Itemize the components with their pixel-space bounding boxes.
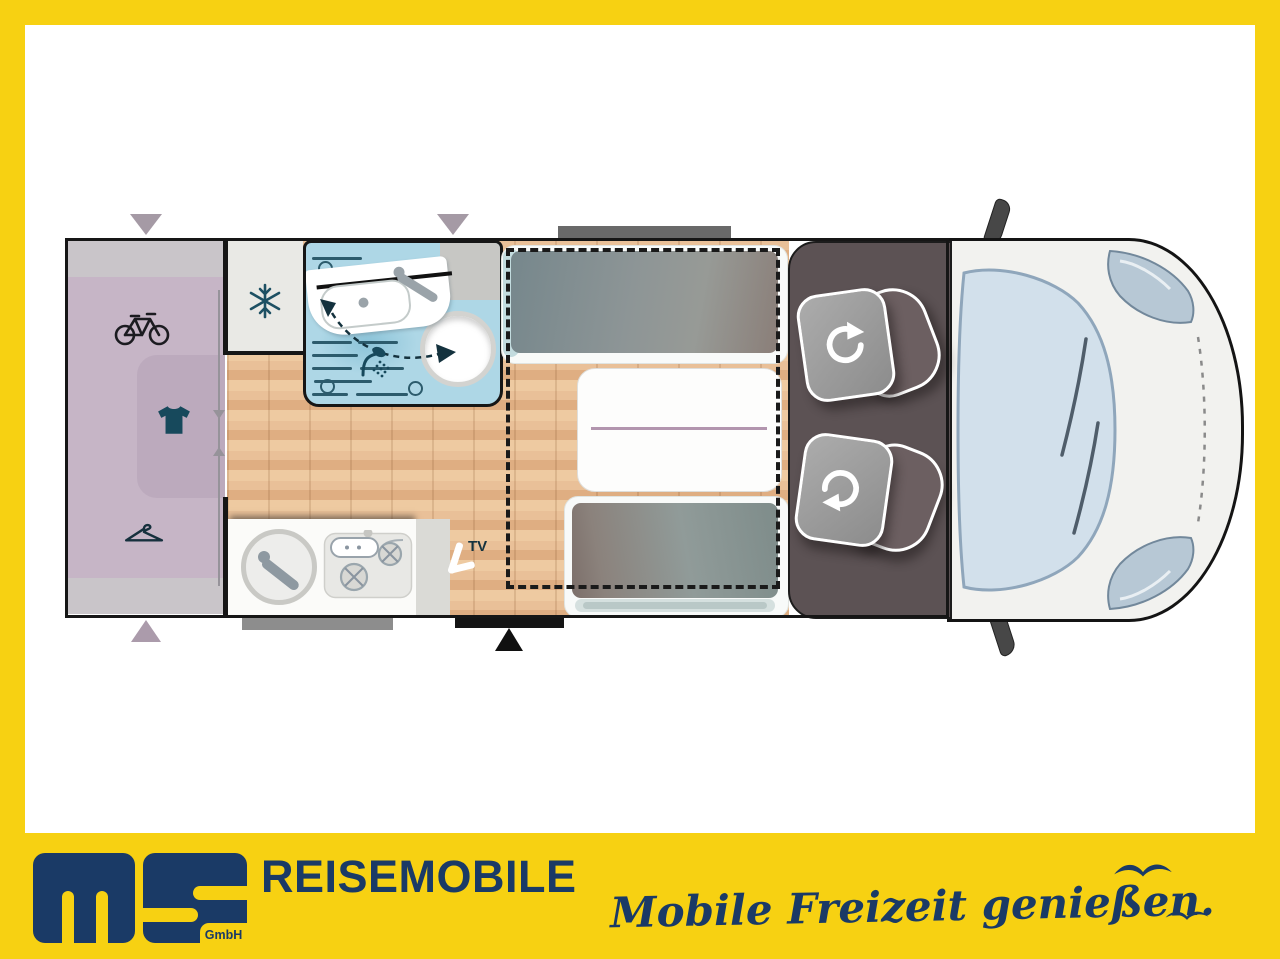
bird-icon [1112,855,1174,887]
swivel-seat-icon [792,430,896,549]
logo-m-block [33,853,135,943]
bathroom [303,240,503,407]
windshield [958,270,1115,590]
bird-icon [1164,903,1210,927]
hood-line [1198,337,1205,523]
drop-down-bed-outline [506,248,780,589]
divider-arrow-up [213,447,225,456]
logo-gmbh-label: GmbH [200,923,247,943]
entry-arrow-marker [495,628,523,651]
flyer: { "window": {"width": 1280, "height": 95… [0,0,1280,959]
logo-s-block: GmbH [143,853,247,943]
bench-footboard-inner [583,602,767,609]
garage-door-marker [131,620,161,642]
windshield-headlights-graphic [950,241,1241,619]
garage-divider-line [218,290,220,586]
swivel-wall-arrows [306,243,500,404]
divider-arrow-down [213,410,225,419]
kitchen-faucet-pivot [258,551,270,563]
tv-label: TV [468,538,487,555]
vehicle-front-body [947,238,1244,622]
logo-notch [193,886,247,900]
counter-end-panel [416,519,450,616]
roof-window-marker [558,226,731,239]
shower-icon [358,341,390,379]
stove-icon [323,530,413,599]
swivel-seat-icon [794,285,898,404]
brand-title: REISEMOBILE [261,854,577,899]
snowflake-icon [247,283,283,319]
bicycle-icon [114,308,170,346]
logo-notch [62,891,74,943]
entry-door-marker [455,616,564,628]
logo-notch [96,891,108,943]
slogan-text: Mobile Freizeit genießen. [610,880,1215,935]
tshirt-icon [156,404,192,436]
fridge-wall [227,351,306,355]
window-marker-bath [437,214,469,235]
logo-notch [143,908,198,922]
hanger-icon [123,521,165,545]
kitchen-skirt-step [242,617,393,630]
window-marker-garage [130,214,162,235]
